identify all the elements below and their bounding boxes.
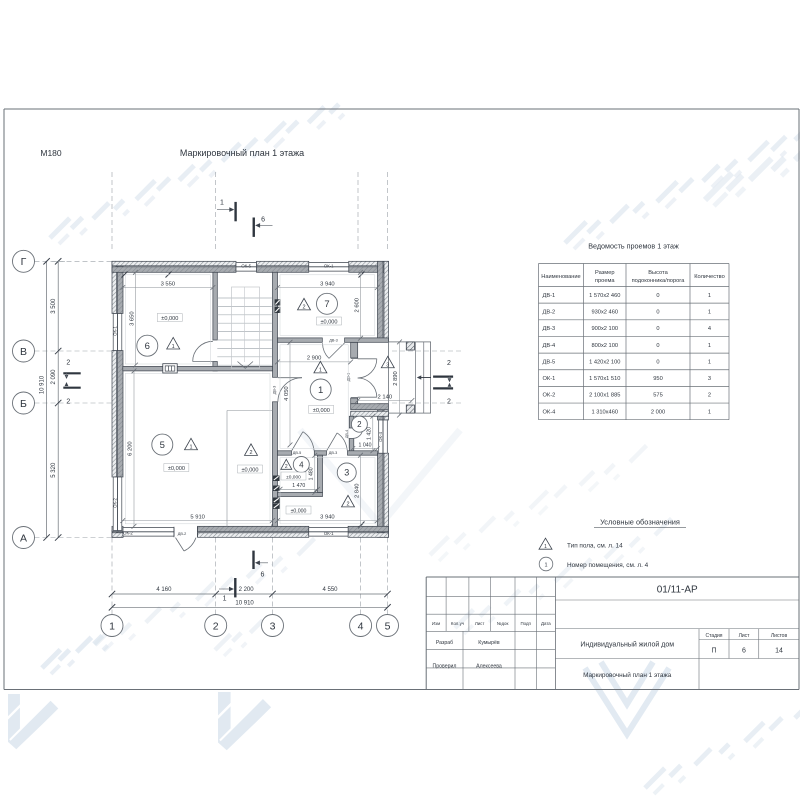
svg-text:0: 0	[656, 343, 659, 349]
svg-text:1: 1	[189, 445, 192, 451]
svg-text:ДВ-2: ДВ-2	[543, 309, 556, 315]
svg-text:2 100х1 885: 2 100х1 885	[589, 393, 620, 399]
svg-text:ДВ-2: ДВ-2	[178, 532, 186, 536]
svg-text:1 470: 1 470	[292, 483, 305, 489]
svg-text:Проверил: Проверил	[433, 664, 457, 670]
svg-text:2: 2	[213, 620, 219, 632]
svg-text:ОК-1: ОК-1	[324, 264, 334, 269]
svg-text:ДВ-3: ДВ-3	[329, 338, 337, 342]
svg-text:800х2 100: 800х2 100	[591, 343, 618, 349]
svg-text:Маркировочный план 1 этажа: Маркировочный план 1 этажа	[180, 148, 304, 158]
svg-text:5: 5	[160, 440, 165, 451]
svg-text:2 840: 2 840	[354, 483, 360, 498]
svg-text:6: 6	[261, 572, 265, 579]
svg-text:3 550: 3 550	[161, 281, 176, 287]
svg-text:Листов: Листов	[771, 633, 788, 639]
svg-text:1: 1	[544, 562, 547, 568]
svg-text:1 570х2 460: 1 570х2 460	[589, 293, 620, 299]
svg-text:1: 1	[223, 596, 227, 603]
svg-text:7: 7	[324, 299, 329, 310]
svg-text:2 900: 2 900	[307, 356, 322, 362]
svg-text:4: 4	[708, 326, 711, 332]
svg-text:ОК-2: ОК-2	[543, 393, 556, 399]
svg-text:4 550: 4 550	[322, 587, 338, 593]
svg-text:2: 2	[447, 398, 451, 405]
svg-text:±0,000: ±0,000	[168, 466, 185, 472]
svg-text:5: 5	[385, 620, 391, 632]
svg-text:1: 1	[109, 620, 115, 632]
svg-text:6 200: 6 200	[128, 441, 134, 456]
svg-text:4 160: 4 160	[156, 587, 172, 593]
svg-text:2: 2	[66, 360, 70, 367]
svg-text:1: 1	[708, 293, 711, 299]
svg-text:ДВ-3: ДВ-3	[273, 386, 277, 394]
svg-text:ДВ-4: ДВ-4	[543, 343, 556, 349]
svg-text:Лист: Лист	[739, 633, 751, 639]
svg-text:проема: проема	[595, 278, 615, 284]
svg-text:2: 2	[66, 398, 70, 405]
svg-text:2 200: 2 200	[239, 587, 255, 593]
svg-text:14: 14	[775, 648, 783, 655]
svg-text:ДВ-5: ДВ-5	[543, 359, 556, 365]
svg-text:1: 1	[708, 343, 711, 349]
svg-text:ДВ-1: ДВ-1	[347, 373, 351, 381]
svg-text:ДВ-5: ДВ-5	[293, 451, 301, 455]
svg-text:ДВ-3: ДВ-3	[329, 451, 337, 455]
svg-text:Алексеева: Алексеева	[476, 664, 502, 670]
svg-text:3 940: 3 940	[320, 281, 335, 287]
svg-text:П: П	[711, 648, 716, 655]
svg-text:0: 0	[656, 309, 659, 315]
svg-text:Дата: Дата	[541, 621, 551, 626]
svg-text:ОК-1: ОК-1	[113, 326, 118, 336]
svg-text:1 570х1 510: 1 570х1 510	[589, 376, 620, 382]
svg-text:Г: Г	[21, 256, 27, 268]
svg-text:2: 2	[708, 393, 711, 399]
svg-text:1 310х460: 1 310х460	[591, 409, 618, 415]
svg-text:575: 575	[653, 393, 663, 399]
svg-text:5 320: 5 320	[51, 462, 57, 478]
svg-text:ОК-4: ОК-4	[543, 409, 556, 415]
svg-text:4: 4	[299, 460, 304, 469]
svg-text:В: В	[20, 346, 27, 358]
svg-text:Высота: Высота	[648, 270, 668, 276]
svg-text:2 090: 2 090	[51, 369, 57, 385]
svg-text:4: 4	[358, 620, 364, 632]
svg-text:10 910: 10 910	[235, 600, 254, 606]
svg-text:1 040: 1 040	[359, 442, 372, 448]
svg-text:Кол.уч: Кол.уч	[451, 621, 464, 626]
svg-text:2 600: 2 600	[354, 298, 360, 313]
svg-text:1: 1	[172, 344, 175, 350]
svg-text:Ведомость проемов 1 этаж: Ведомость проемов 1 этаж	[588, 242, 679, 251]
svg-text:Маркировочный план 1 этажа: Маркировочный план 1 этажа	[583, 671, 672, 679]
svg-text:№док: №док	[497, 621, 509, 626]
svg-text:900х2 100: 900х2 100	[591, 326, 618, 332]
svg-text:01/11-АР: 01/11-АР	[657, 584, 698, 595]
svg-text:1: 1	[220, 200, 224, 207]
svg-text:2: 2	[447, 360, 451, 367]
svg-text:ДВ-1: ДВ-1	[543, 293, 556, 299]
svg-text:1: 1	[544, 544, 547, 550]
svg-text:0: 0	[656, 326, 659, 332]
svg-text:Б: Б	[20, 398, 27, 410]
svg-text:1: 1	[708, 309, 711, 315]
svg-text:ОК-5: ОК-5	[241, 264, 251, 269]
svg-text:3: 3	[708, 376, 711, 382]
svg-text:Подп: Подп	[520, 621, 531, 626]
svg-text:±0,000: ±0,000	[320, 320, 337, 326]
svg-text:подоконника/порога: подоконника/порога	[632, 278, 686, 284]
svg-text:ОК-1: ОК-1	[543, 376, 556, 382]
svg-text:Изм: Изм	[432, 621, 440, 626]
svg-text:1: 1	[708, 359, 711, 365]
svg-text:±0,000: ±0,000	[313, 408, 330, 414]
svg-text:2: 2	[249, 450, 252, 456]
svg-text:950: 950	[653, 376, 663, 382]
svg-text:Кумырёв: Кумырёв	[478, 640, 500, 646]
svg-text:±0,000: ±0,000	[286, 475, 301, 481]
svg-text:2: 2	[346, 502, 349, 508]
svg-text:ДВ-3: ДВ-3	[543, 326, 556, 332]
svg-text:1: 1	[319, 368, 322, 374]
svg-text:0: 0	[656, 293, 659, 299]
svg-text:Лист: Лист	[475, 621, 485, 626]
svg-text:5 910: 5 910	[190, 514, 205, 520]
svg-text:Тип пола, см. л. 14: Тип пола, см. л. 14	[567, 543, 623, 550]
svg-text:ОК-2: ОК-2	[123, 531, 133, 536]
svg-text:6: 6	[742, 648, 746, 655]
svg-text:Количество: Количество	[694, 274, 725, 280]
svg-text:2 140: 2 140	[378, 394, 393, 400]
svg-text:0: 0	[656, 359, 659, 365]
svg-text:2: 2	[302, 305, 305, 311]
svg-text:2: 2	[285, 464, 288, 470]
svg-text:Стадия: Стадия	[705, 633, 722, 639]
svg-text:1 420х2 100: 1 420х2 100	[589, 359, 620, 365]
svg-text:2 890: 2 890	[393, 371, 399, 386]
svg-text:Номер помещения, см. л. 4: Номер помещения, см. л. 4	[567, 562, 649, 569]
svg-text:±0,000: ±0,000	[241, 468, 258, 474]
svg-text:3: 3	[386, 363, 389, 369]
svg-text:±0,000: ±0,000	[291, 509, 307, 515]
svg-text:3: 3	[270, 620, 276, 632]
svg-text:Разраб: Разраб	[436, 640, 453, 646]
svg-text:3 650: 3 650	[129, 311, 135, 326]
svg-text:4 050: 4 050	[284, 386, 290, 401]
svg-text:3 940: 3 940	[320, 514, 335, 520]
svg-text:ОК-4: ОК-4	[378, 432, 383, 442]
svg-text:2 000: 2 000	[651, 409, 665, 415]
svg-text:Индивидуальный жилой дом: Индивидуальный жилой дом	[580, 640, 674, 648]
svg-text:930х2 460: 930х2 460	[591, 309, 618, 315]
svg-text:2: 2	[357, 420, 362, 429]
svg-text:6: 6	[261, 216, 265, 223]
svg-text:ОК-2: ОК-2	[113, 498, 118, 508]
svg-text:Условные обозначения: Условные обозначения	[600, 518, 680, 527]
svg-text:6: 6	[145, 341, 150, 352]
svg-text:1: 1	[708, 409, 711, 415]
svg-text:Наименование: Наименование	[541, 274, 580, 280]
svg-text:1 480: 1 480	[309, 467, 315, 480]
svg-text:±0,000: ±0,000	[161, 316, 178, 322]
svg-text:М180: М180	[40, 148, 62, 158]
svg-text:10 910: 10 910	[39, 375, 45, 394]
svg-text:А: А	[20, 532, 27, 544]
svg-text:3 500: 3 500	[51, 298, 57, 314]
svg-text:ОК-1: ОК-1	[324, 531, 334, 536]
svg-text:3: 3	[344, 468, 349, 478]
svg-text:Размер: Размер	[595, 270, 615, 276]
svg-text:1 420: 1 420	[367, 427, 373, 440]
svg-text:1: 1	[318, 385, 323, 396]
